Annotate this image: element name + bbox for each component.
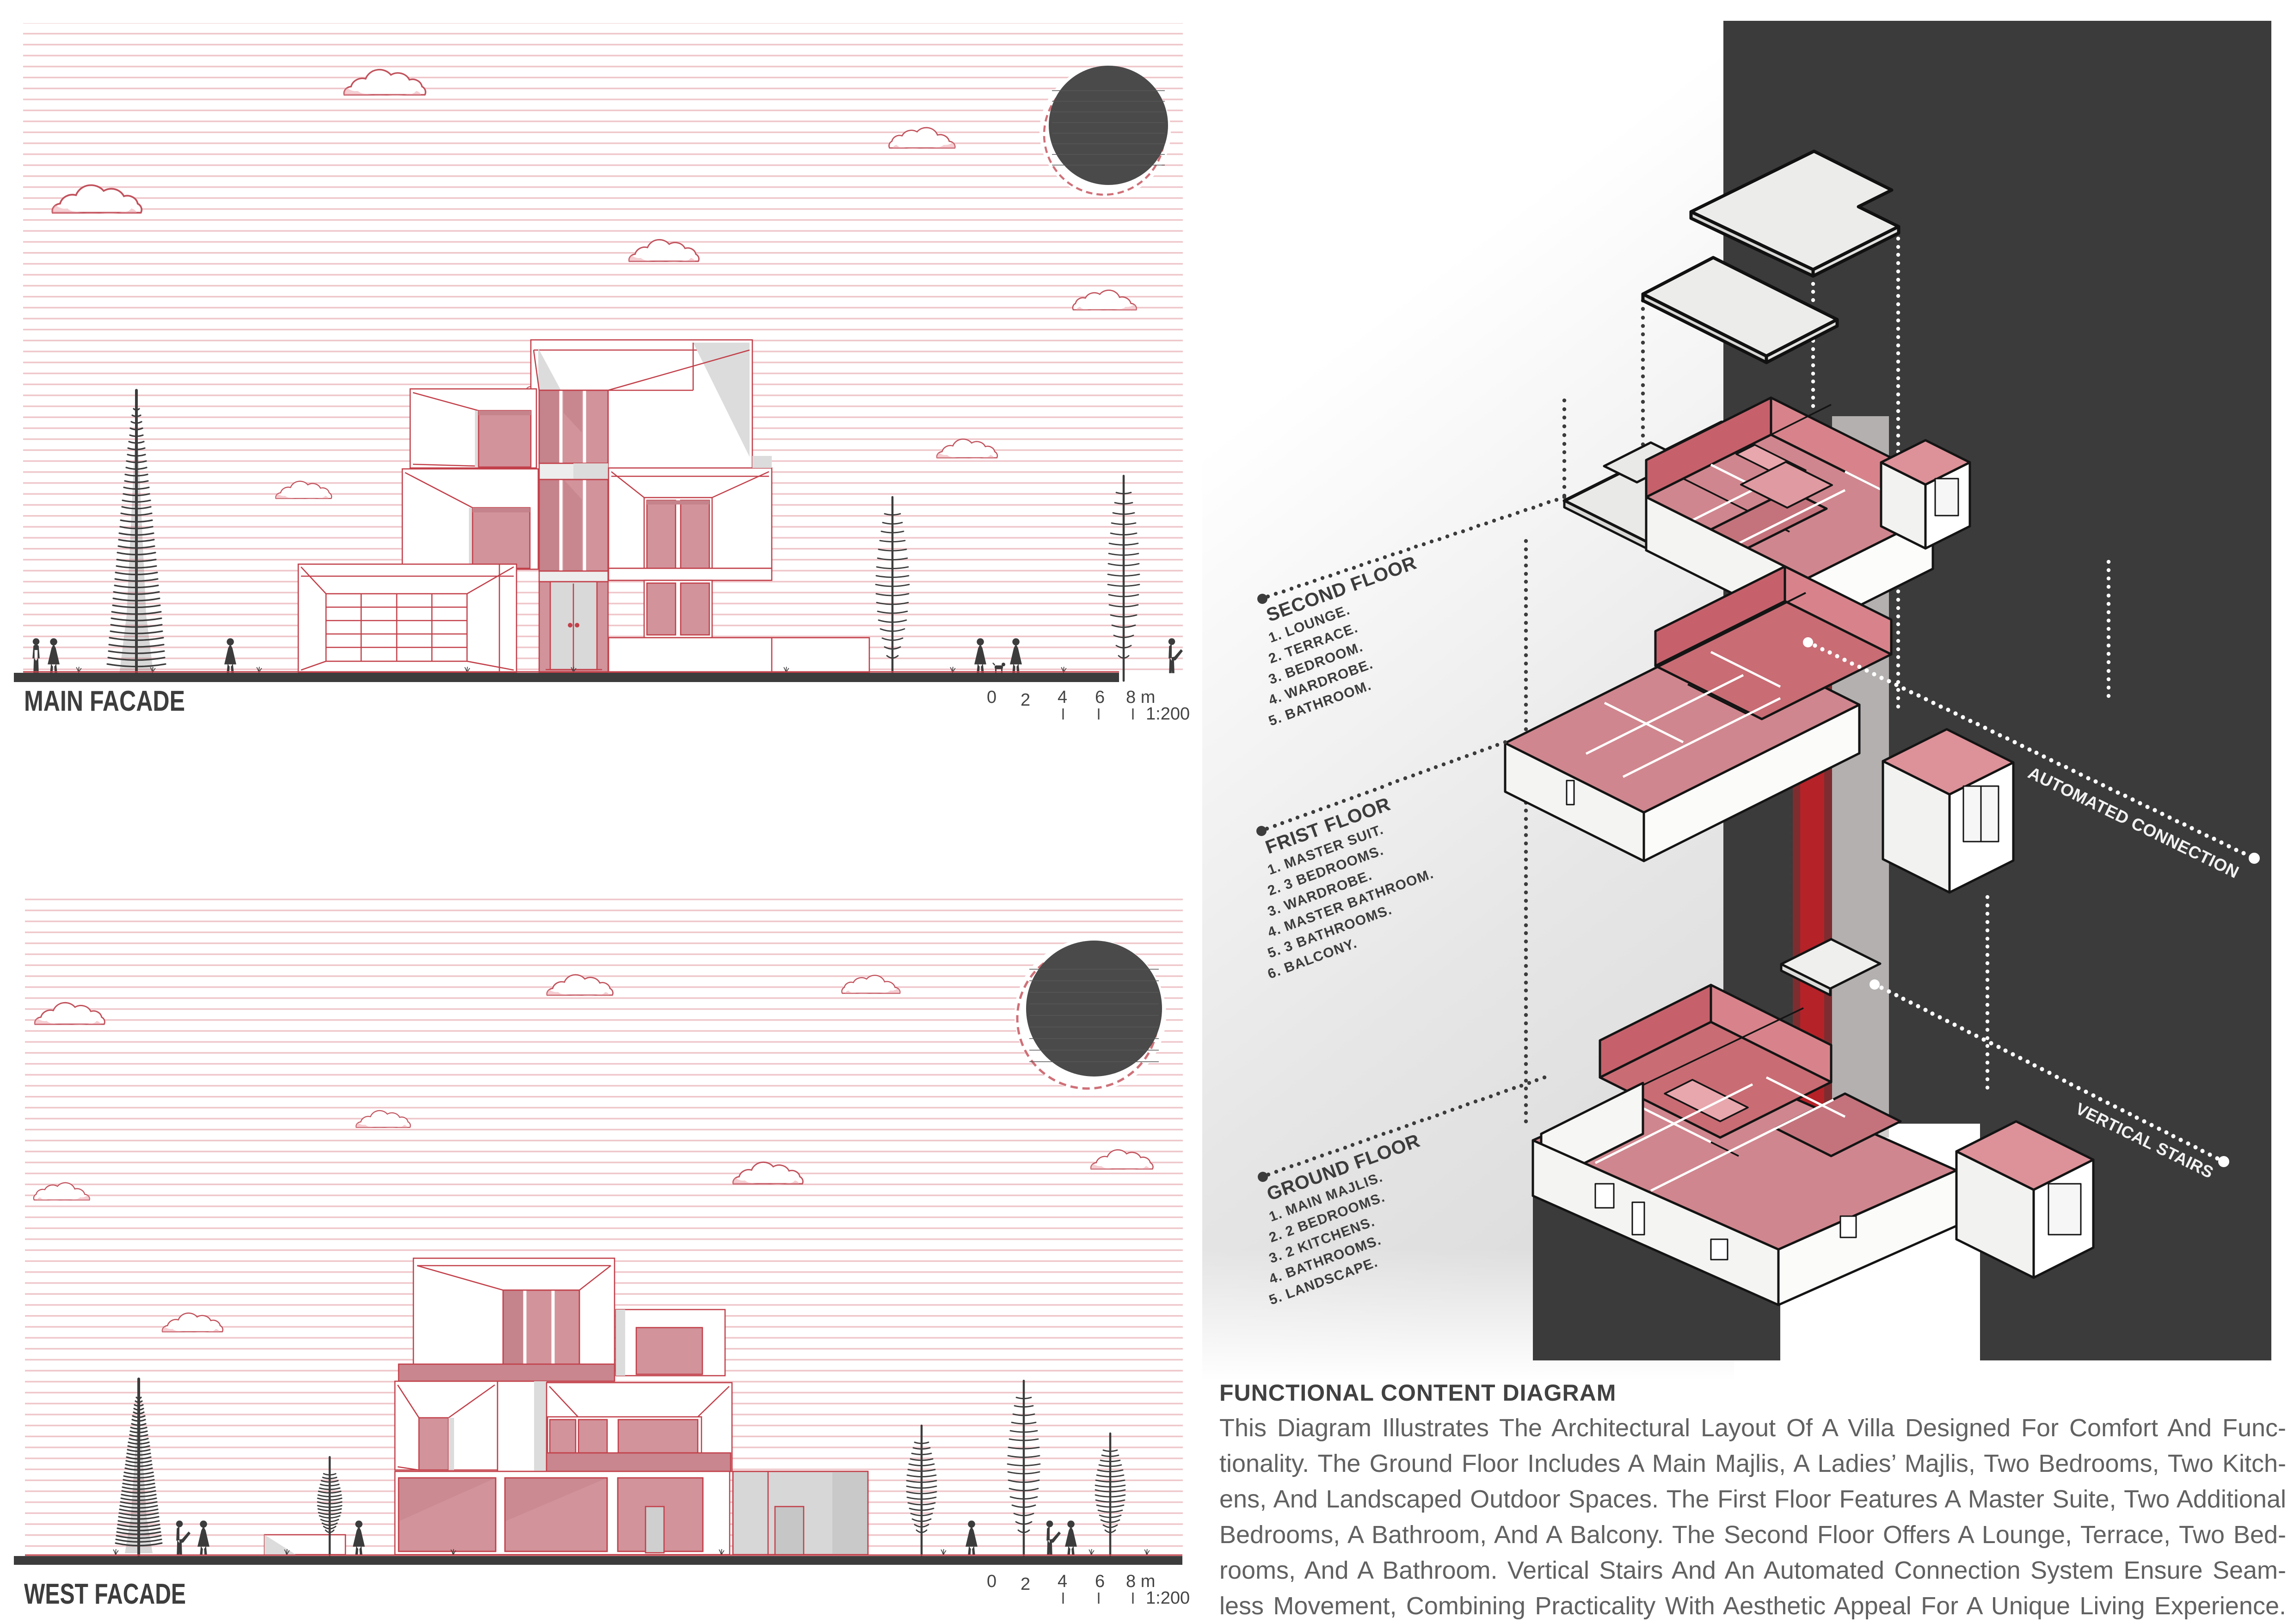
svg-text:4: 4	[1058, 1572, 1067, 1591]
svg-text:0: 0	[987, 1572, 996, 1591]
svg-text:2: 2	[1021, 690, 1030, 710]
svg-text:1:200: 1:200	[1146, 1588, 1190, 1608]
svg-text:6: 6	[1095, 688, 1105, 707]
svg-text:0: 0	[987, 688, 996, 707]
svg-text:MAIN FACADE: MAIN FACADE	[24, 685, 185, 717]
svg-text:2: 2	[1021, 1575, 1030, 1594]
svg-text:6: 6	[1095, 1572, 1105, 1591]
svg-text:4: 4	[1058, 688, 1067, 707]
svg-text:WEST FACADE: WEST FACADE	[24, 1578, 186, 1610]
svg-text:1:200: 1:200	[1146, 704, 1190, 724]
